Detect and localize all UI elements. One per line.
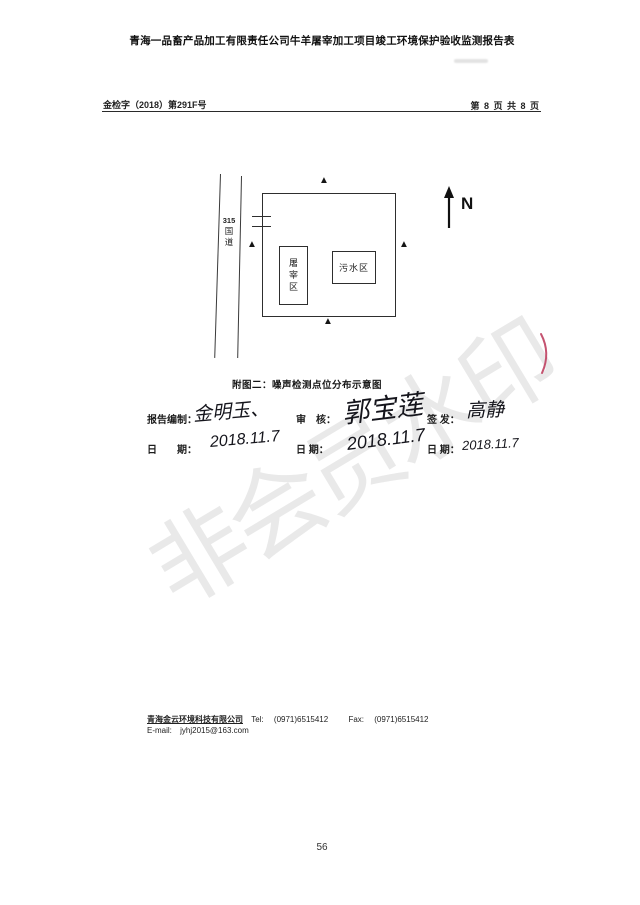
issued-by-label: 签 发： — [427, 411, 460, 426]
page-number: 56 — [0, 842, 640, 853]
road-name-char-1: 国 — [217, 226, 241, 237]
document-number: 金检字（2018）第291F号 — [103, 98, 207, 111]
issued-by-signature: 高静 — [466, 395, 505, 423]
reviewed-by-label: 审 核： — [296, 411, 336, 426]
footer-company-name: 青海金云环境科技有限公司 — [147, 715, 243, 724]
header-divider — [102, 111, 541, 112]
gate-mark-upper — [252, 216, 271, 217]
footer-contact-line: 青海金云环境科技有限公司 Tel: (0971)6515412 Fax: (09… — [147, 714, 447, 725]
footer-tel-value: (0971)6515412 — [274, 715, 328, 724]
scan-smudge — [454, 59, 488, 63]
road-label: 315 国 道 — [217, 215, 241, 248]
prepared-by-signature: 金明玉、 — [192, 393, 270, 427]
sewage-area-label: 污水区 — [339, 261, 369, 274]
road-number: 315 — [217, 215, 241, 226]
issue-date-value: 2018.11.7 — [462, 435, 520, 453]
gate-mark-lower — [252, 226, 271, 227]
page-content: 青海一品畜产品加工有限责任公司牛羊屠宰加工项目竣工环境保护验收监测报告表 金检字… — [0, 0, 640, 905]
footer-fax-value: (0971)6515412 — [374, 715, 428, 724]
monitoring-point-marker-west: ▲ — [247, 240, 257, 250]
review-date-label: 日 期： — [296, 441, 329, 456]
footer-email-line: E-mail: jyhj2015@163.com — [147, 726, 249, 735]
slaughter-area-label: 屠宰区 — [287, 258, 300, 294]
sewage-area-box: 污水区 — [332, 251, 376, 284]
road-line-left — [214, 174, 221, 358]
north-label: N — [461, 194, 473, 214]
scanned-report-page: 非会员水印 青海一品畜产品加工有限责任公司牛羊屠宰加工项目竣工环境保护验收监测报… — [0, 0, 640, 905]
slaughter-area-box: 屠宰区 — [279, 246, 308, 305]
prepared-by-label: 报告编制： — [147, 411, 197, 426]
issue-date-label: 日 期： — [427, 441, 460, 456]
road-name-char-2: 道 — [217, 237, 241, 248]
prepared-date-value: 2018.11.7 — [209, 428, 280, 452]
footer-tel-label: Tel: — [251, 715, 263, 724]
pen-mark — [538, 331, 554, 377]
monitoring-point-marker-east: ▲ — [399, 240, 409, 250]
monitoring-point-marker-north: ▲ — [319, 176, 329, 186]
road-line-right — [237, 176, 242, 358]
north-arrow-icon — [441, 184, 457, 230]
report-title: 青海一品畜产品加工有限责任公司牛羊屠宰加工项目竣工环境保护验收监测报告表 — [62, 33, 582, 48]
footer-fax-label: Fax: — [348, 715, 364, 724]
prepared-date-label: 日 期： — [147, 441, 197, 456]
monitoring-point-marker-south: ▲ — [323, 317, 333, 327]
footer-email-value: jyhj2015@163.com — [180, 726, 249, 735]
footer-email-label: E-mail: — [147, 726, 172, 735]
reviewed-by-signature: 郭宝莲 — [340, 382, 425, 431]
